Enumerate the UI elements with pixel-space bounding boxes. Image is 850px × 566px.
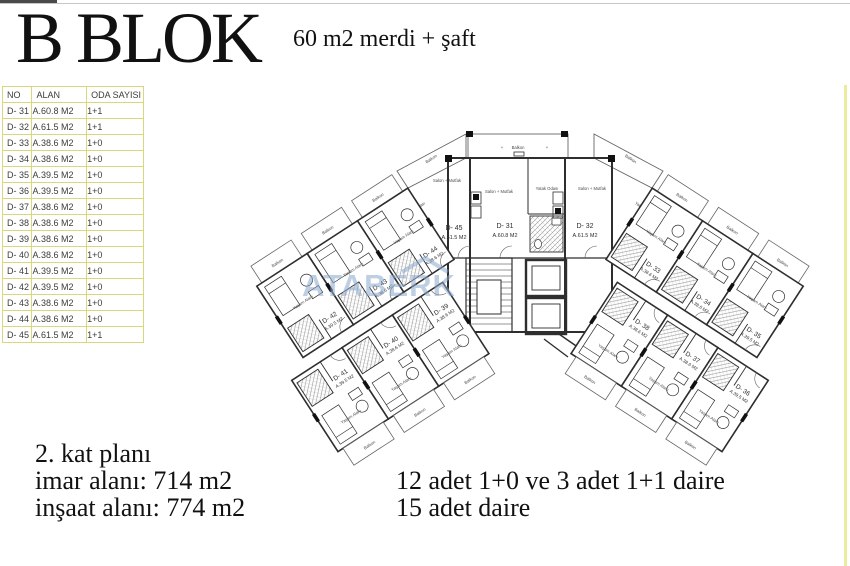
table-row: D- 31A.60.8 M21+1 [3,103,144,119]
cell-alan: A.61.5 M2 [32,119,87,135]
cell-alan: A.60.8 M2 [32,103,87,119]
table-row: D- 40A.38.6 M21+0 [3,247,144,263]
cell-alan: A.38.6 M2 [32,247,87,263]
cell-no: D- 32 [3,119,32,135]
cell-oda: 1+1 [87,327,144,343]
cell-no: D- 44 [3,311,32,327]
table-row: D- 44A.38.6 M21+0 [3,311,144,327]
unit-area-d45: A.61.5 M2 [441,235,466,241]
table-row: D- 32A.61.5 M21+1 [3,119,144,135]
unit-area-d32: A.61.5 M2 [572,233,597,239]
cell-alan: A.61.5 M2 [32,327,87,343]
room-label-salon: Salon + Mutfak [433,178,462,183]
cell-alan: A.39.5 M2 [32,263,87,279]
staircase [466,258,512,332]
cell-alan: A.38.6 M2 [32,135,87,151]
floor-label: 2. kat planı [35,440,245,467]
cell-alan: A.38.6 M2 [32,231,87,247]
imar-area: imar alanı: 714 m2 [35,467,245,494]
page-title: B BLOK [16,0,260,76]
cell-oda: 1+0 [87,135,144,151]
table-row: D- 37A.38.6 M21+0 [3,199,144,215]
table-row: D- 38A.38.6 M21+0 [3,215,144,231]
table-row: D- 39A.38.6 M21+0 [3,231,144,247]
cell-oda: 1+0 [87,247,144,263]
footer-right: 12 adet 1+0 ve 3 adet 1+1 daire 15 adet … [396,467,725,521]
cell-no: D- 41 [3,263,32,279]
balcony-label: Balkon [512,145,525,150]
unit-id-d45: D- 45 [445,225,462,232]
cell-oda: 1+0 [87,231,144,247]
cell-oda: 1+0 [87,279,144,295]
unit-total: 15 adet daire [396,494,725,521]
balcony-label: Balkon [624,153,638,165]
cell-no: D- 45 [3,327,32,343]
floor-plan: Balkon + + Balkon Balkon Salon + Mutfak … [190,85,850,485]
unit-mix: 12 adet 1+0 ve 3 adet 1+1 daire [396,467,725,494]
cell-oda: 1+0 [87,263,144,279]
header-oda-sayisi: ODA SAYISI [87,87,144,103]
cell-no: D- 36 [3,183,32,199]
cell-oda: 1+0 [87,311,144,327]
cell-oda: 1+1 [87,119,144,135]
balcony-label: Balkon [424,153,438,165]
cell-alan: A.39.5 M2 [32,279,87,295]
corner-balcony-right [594,134,663,188]
table-row: D- 45A.61.5 M21+1 [3,327,144,343]
room-label-salon: Salon + Mutfak [578,186,607,191]
cell-oda: 1+0 [87,151,144,167]
insaat-area: inşaat alanı: 774 m2 [35,494,245,521]
table-row: D- 43A.38.6 M21+0 [3,295,144,311]
cell-no: D- 38 [3,215,32,231]
cell-no: D- 42 [3,279,32,295]
header-no: NO [3,87,32,103]
cell-alan: A.38.6 M2 [32,295,87,311]
cell-oda: 1+0 [87,183,144,199]
cell-no: D- 37 [3,199,32,215]
unit-id-d31: D- 31 [496,223,513,230]
cell-no: D- 39 [3,231,32,247]
left-wing: D- 44 A.38.6 M2 Yaşam Alanı Balkon D- 43… [226,170,520,469]
elevator-shafts [526,260,566,334]
cell-alan: A.38.6 M2 [32,199,87,215]
right-wing: D- 33 A.38.6 M2 Yaşam Alanı Balkon D- 34… [540,170,834,469]
cell-alan: A.39.5 M2 [32,167,87,183]
page-subtitle: 60 m2 merdi + şaft [293,26,476,53]
table-row: D- 42A.39.5 M21+0 [3,279,144,295]
cell-no: D- 35 [3,167,32,183]
cell-no: D- 40 [3,247,32,263]
table-header-row: NO ALAN ODA SAYISI [3,87,144,103]
table-row: D- 35A.39.5 M21+0 [3,167,144,183]
cell-no: D- 43 [3,295,32,311]
svg-text:+: + [501,145,504,150]
cell-no: D- 33 [3,135,32,151]
cell-alan: A.38.6 M2 [32,151,87,167]
cell-alan: A.39.5 M2 [32,183,87,199]
cell-oda: 1+0 [87,295,144,311]
cell-alan: A.38.6 M2 [32,215,87,231]
cell-oda: 1+0 [87,167,144,183]
table-row: D- 36A.39.5 M21+0 [3,183,144,199]
svg-text:+: + [546,145,549,150]
table-row: D- 33A.38.6 M21+0 [3,135,144,151]
cell-no: D- 34 [3,151,32,167]
cell-oda: 1+1 [87,103,144,119]
cell-oda: 1+0 [87,215,144,231]
unit-id-d32: D- 32 [576,223,593,230]
watermark-text: ATABERK [302,268,456,303]
table-row: D- 34A.38.6 M21+0 [3,151,144,167]
unit-area-d31: A.60.8 M2 [492,233,517,239]
room-label-salon: Salon + Mutfak [485,189,514,194]
table-row: D- 41A.39.5 M21+0 [3,263,144,279]
footer-left: 2. kat planı imar alanı: 714 m2 inşaat a… [35,440,245,521]
cell-oda: 1+0 [87,199,144,215]
cell-alan: A.38.6 M2 [32,311,87,327]
cell-no: D- 31 [3,103,32,119]
unit-table: NO ALAN ODA SAYISI D- 31A.60.8 M21+1 D- … [2,86,144,343]
header-alan: ALAN [32,87,87,103]
room-label-yatak: Yatak Odası [536,186,559,191]
